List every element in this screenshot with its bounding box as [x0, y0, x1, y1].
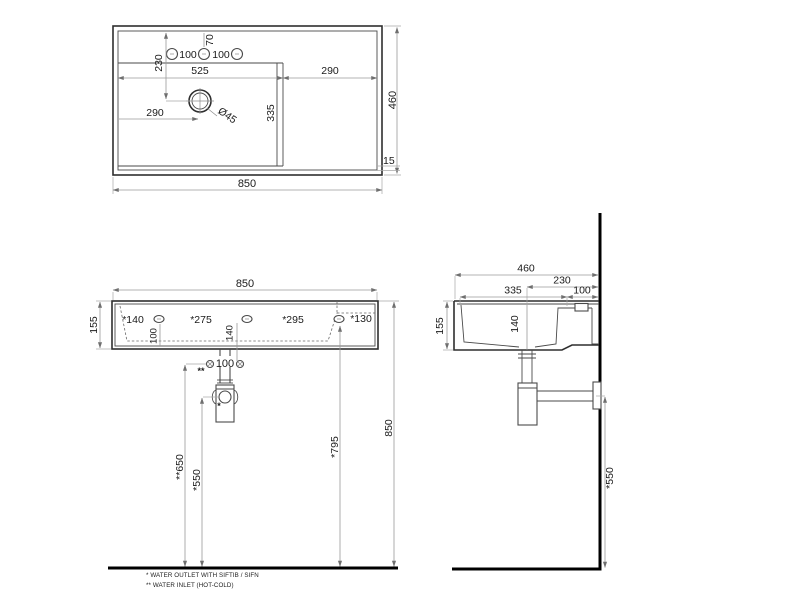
dim-hole-spacing-right: 100: [212, 49, 230, 61]
side-view: 460 230 335 100 155 140 *550: [434, 213, 616, 569]
outlet-footnote-marker: *: [217, 401, 221, 411]
dim-front-rim: 15: [383, 155, 395, 167]
dim-bowl-width: 525: [191, 65, 209, 77]
wall-flange: [593, 382, 601, 409]
dim-hole-295: *295: [282, 314, 304, 326]
dim-holes-floor: *795: [329, 436, 341, 458]
drawing-page: 100 100 70 Ø45 525 290 230 290 335 850: [0, 0, 800, 600]
dim-drain-left: 290: [146, 107, 164, 119]
dim-hole-spacing-left: 100: [179, 49, 197, 61]
wall-outlet-pipe: [537, 382, 601, 409]
inlet-footnote-marker: **: [197, 366, 205, 376]
dim-drain-wall: 230: [553, 275, 571, 287]
dim-hole-height: 100: [149, 328, 160, 344]
basin-outer-top: [113, 26, 382, 175]
dim-height-side: 155: [434, 317, 446, 335]
footnote-water-outlet: * WATER OUTLET WITH SIFTIB / SIFN: [146, 572, 259, 579]
dim-total-width-front: 850: [236, 278, 254, 290]
dim-rim-floor: 850: [383, 419, 395, 437]
footnote-water-inlet: ** WATER INLET (HOT-COLD): [146, 582, 234, 589]
dim-inlet-spacing: 100: [216, 358, 234, 370]
dim-drain-back: 230: [153, 54, 165, 72]
dim-bowl-depth-top: 335: [265, 104, 277, 122]
dim-hole-offset: 70: [204, 34, 216, 46]
dim-ledge: 100: [573, 285, 591, 297]
bottle-trap-front: [212, 385, 238, 422]
dim-hole-130: *130: [350, 313, 372, 325]
dim-total-depth-top: 460: [387, 91, 399, 109]
dim-total-width-top: 850: [238, 178, 256, 190]
footnotes: * WATER OUTLET WITH SIFTIB / SIFN ** WAT…: [146, 572, 259, 589]
inlet-recess-side: [575, 304, 588, 312]
bottle-trap-side: [518, 383, 537, 425]
drain-tailpipe-side: [518, 350, 536, 383]
front-view: *140 *275 *295 *130 100 140 850 155: [88, 278, 399, 568]
dim-hole-140: *140: [122, 314, 144, 326]
dim-inlet-height: **650: [174, 454, 186, 480]
dim-height-front: 155: [88, 316, 100, 334]
dim-hole-275: *275: [190, 314, 212, 326]
top-view: 100 100 70 Ø45 525 290 230 290 335 850: [113, 26, 401, 194]
dim-deck-width: 290: [321, 65, 339, 77]
dim-total-depth-side: 460: [517, 263, 535, 275]
basin-section-side: [454, 301, 599, 350]
technical-drawing-canvas: 100 100 70 Ø45 525 290 230 290 335 850: [0, 0, 800, 600]
dim-inner-depth: 140: [509, 315, 521, 333]
dim-outlet-height-front: *550: [191, 469, 203, 491]
dim-bowl-depth-side: 335: [504, 285, 522, 297]
dim-outlet-height-side: *550: [604, 467, 616, 489]
dim-mid-height: 140: [225, 325, 236, 341]
